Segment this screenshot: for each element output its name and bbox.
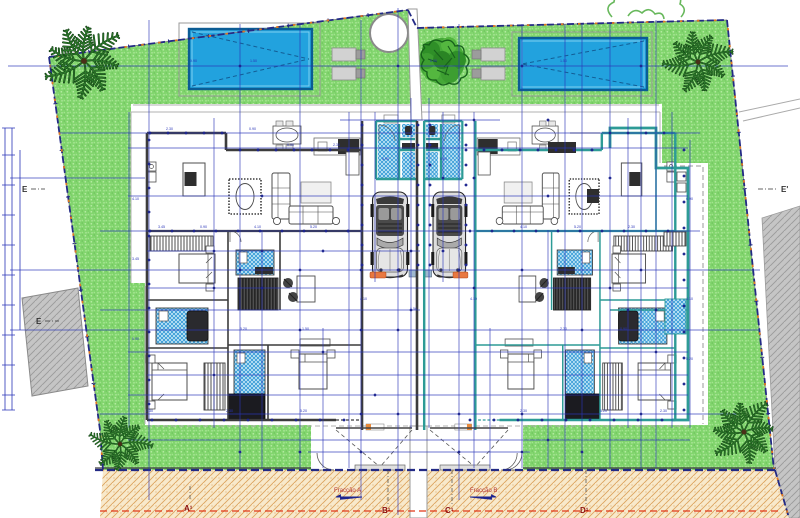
svg-text:0.90: 0.90 [430,59,437,63]
svg-text:1.50: 1.50 [250,59,257,63]
svg-text:3.45: 3.45 [158,225,165,229]
svg-text:0.90: 0.90 [200,225,207,229]
svg-text:5.20: 5.20 [686,357,693,361]
svg-text:A¹: A¹ [184,504,193,513]
svg-text:1.50: 1.50 [410,307,417,311]
svg-text:2.30: 2.30 [226,409,233,413]
svg-text:5.20: 5.20 [310,225,317,229]
svg-text:3.45: 3.45 [132,257,139,261]
svg-text:2.30: 2.30 [333,143,340,147]
svg-text:0.90: 0.90 [287,143,294,147]
svg-text:C¹: C¹ [445,506,454,515]
svg-text:0.90: 0.90 [686,197,693,201]
svg-text:0.90: 0.90 [132,337,139,341]
svg-text:2.30: 2.30 [660,409,667,413]
svg-text:2.30: 2.30 [520,409,527,413]
svg-text:Fracção A: Fracção A [334,488,361,494]
svg-text:4.10: 4.10 [686,297,693,301]
svg-text:0.90: 0.90 [382,157,389,161]
svg-text:Fracção B: Fracção B [470,488,497,494]
svg-text:1.50: 1.50 [302,327,309,331]
svg-text:B¹: B¹ [382,506,391,515]
svg-text:4.10: 4.10 [520,225,527,229]
svg-text:5.20: 5.20 [300,409,307,413]
svg-text:4.10: 4.10 [132,197,139,201]
svg-text:1.50: 1.50 [560,59,567,63]
svg-text:5.20: 5.20 [600,409,607,413]
svg-text:2.30: 2.30 [628,225,635,229]
svg-text:2.30: 2.30 [166,127,173,131]
svg-text:0.90: 0.90 [440,157,447,161]
svg-text:4.10: 4.10 [470,297,477,301]
svg-text:E: E [36,317,42,326]
svg-text:5.20: 5.20 [574,225,581,229]
svg-text:4.10: 4.10 [254,225,261,229]
svg-text:E: E [22,185,28,194]
svg-text:5.20: 5.20 [240,327,247,331]
svg-text:0.90: 0.90 [249,127,256,131]
svg-text:2.30: 2.30 [560,327,567,331]
svg-text:0.90: 0.90 [190,59,197,63]
svg-text:0.90: 0.90 [620,327,627,331]
svg-text:D¹: D¹ [580,506,589,515]
svg-text:4.10: 4.10 [360,297,367,301]
svg-text:2.30: 2.30 [146,409,153,413]
svg-text:E': E' [781,185,788,194]
